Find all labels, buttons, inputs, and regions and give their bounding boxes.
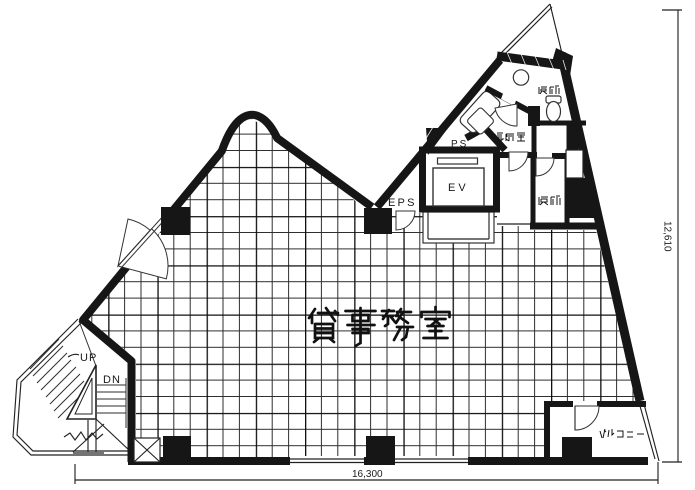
svg-text:EPS: EPS [388,197,417,209]
svg-text:EV: EV [448,182,469,194]
svg-text:PS: PS [451,139,468,150]
svg-text:DN: DN [103,374,121,386]
svg-text:UP: UP [80,352,97,364]
svg-text:16,300: 16,300 [352,469,383,480]
svg-text:12,610: 12,610 [662,221,673,252]
